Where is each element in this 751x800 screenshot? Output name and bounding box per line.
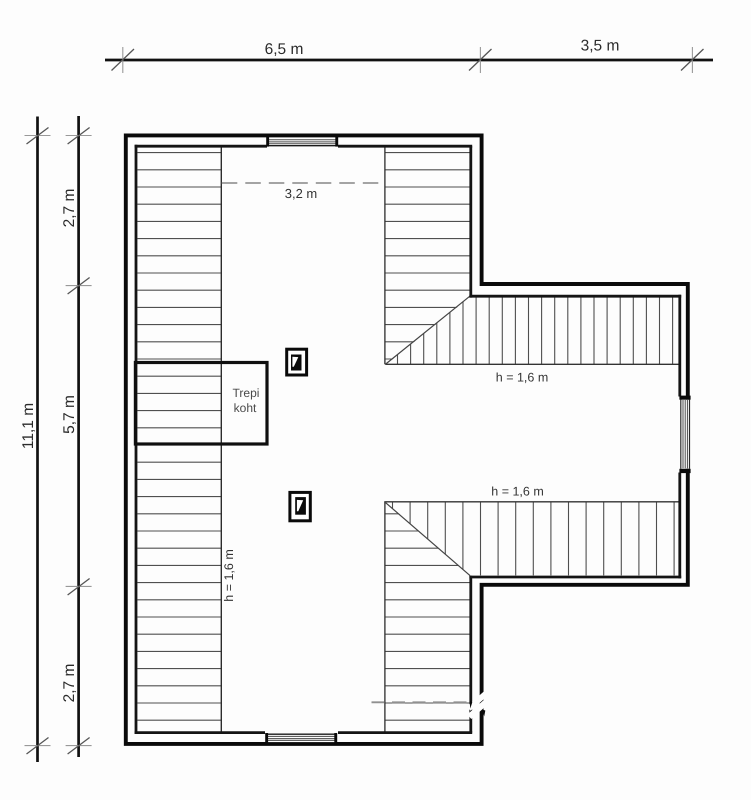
svg-text:5,7 m: 5,7 m <box>61 395 78 434</box>
svg-text:6,5 m: 6,5 m <box>265 41 304 58</box>
svg-text:koht: koht <box>234 401 257 415</box>
svg-text:11,1 m: 11,1 m <box>20 403 37 449</box>
svg-text:h = 1,6 m: h = 1,6 m <box>491 485 543 499</box>
svg-text:2,7 m: 2,7 m <box>61 189 78 228</box>
svg-text:3,5 m: 3,5 m <box>581 38 620 55</box>
svg-text:h = 1,6 m: h = 1,6 m <box>222 549 236 601</box>
svg-text:2,7 m: 2,7 m <box>61 664 78 703</box>
svg-text:3,2 m: 3,2 m <box>285 186 318 201</box>
svg-text:Trepi: Trepi <box>233 386 260 400</box>
svg-text:h = 1,6 m: h = 1,6 m <box>496 371 548 385</box>
